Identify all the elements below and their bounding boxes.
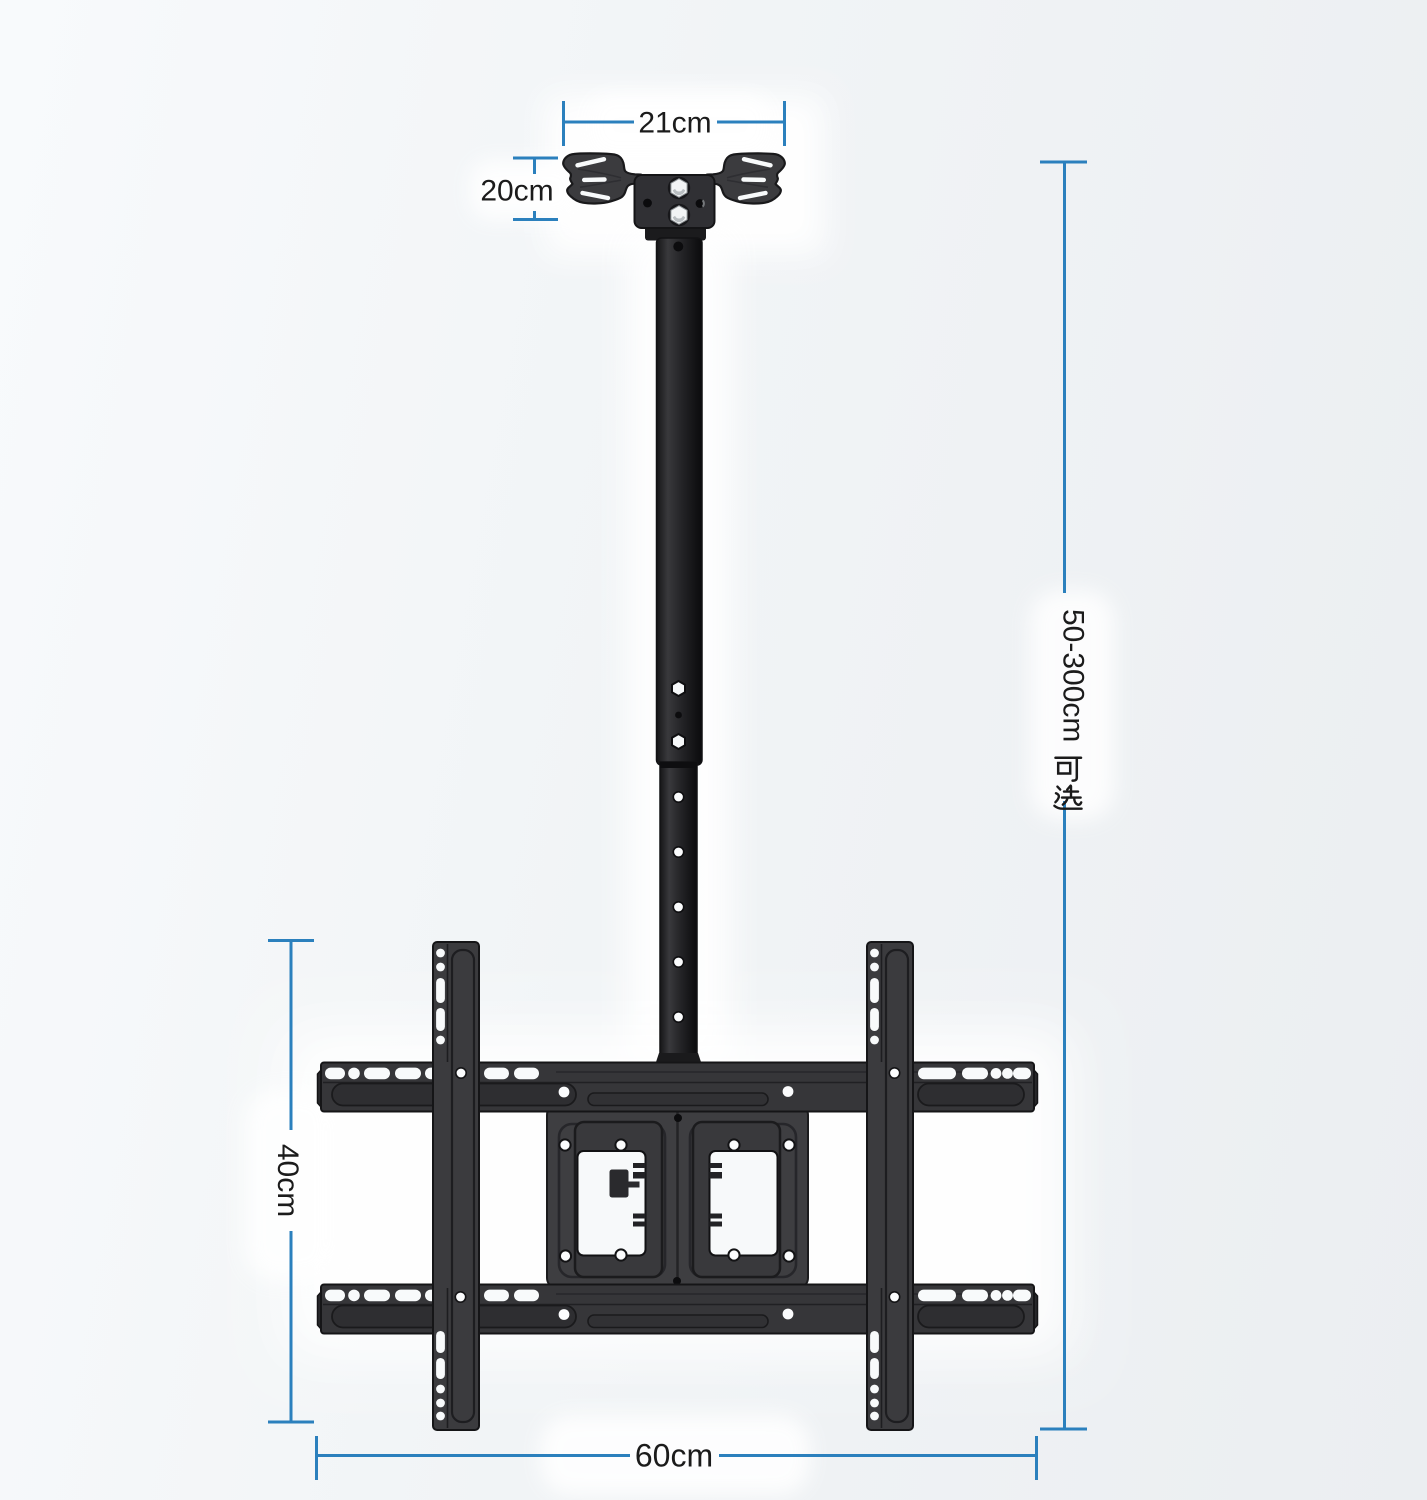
svg-text:21cm: 21cm	[638, 107, 711, 140]
svg-text:60cm: 60cm	[635, 1438, 713, 1474]
svg-text:20cm: 20cm	[480, 175, 553, 208]
svg-text:40cm: 40cm	[271, 1144, 304, 1217]
svg-text:50-300cm: 50-300cm	[1057, 609, 1090, 742]
